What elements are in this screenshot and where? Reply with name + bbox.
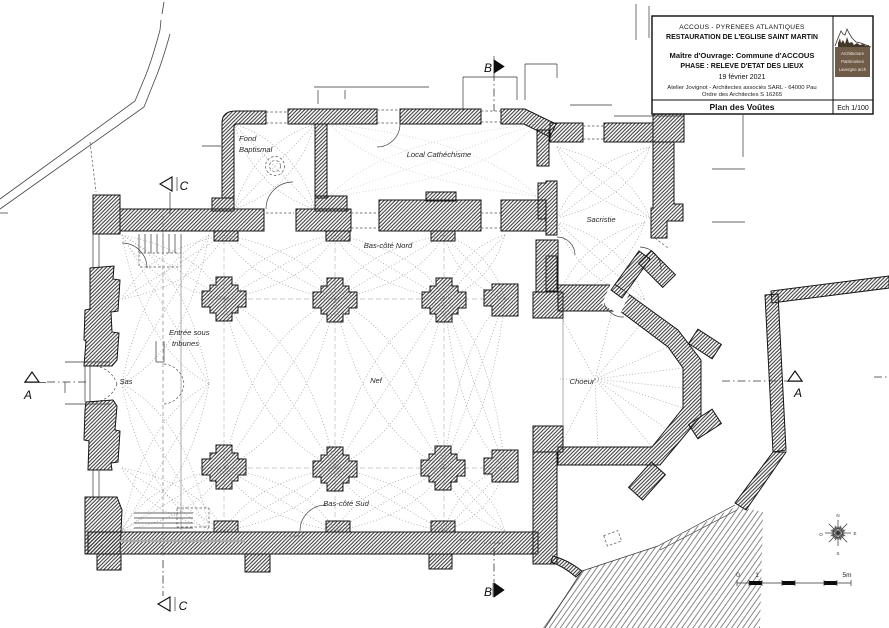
svg-text:Local Cathéchisme: Local Cathéchisme	[407, 150, 472, 159]
svg-text:A: A	[23, 388, 32, 402]
svg-text:B: B	[484, 61, 492, 75]
svg-text:Maître d'Ouvrage: Commune d'AC: Maître d'Ouvrage: Commune d'ACCOUS	[670, 51, 815, 60]
svg-text:Sacristie: Sacristie	[586, 215, 615, 224]
svg-text:C: C	[180, 179, 189, 193]
svg-text:RESTAURATION DE L'EGLISE SAINT: RESTAURATION DE L'EGLISE SAINT MARTIN	[666, 34, 818, 41]
svg-text:B: B	[484, 585, 492, 599]
svg-text:Bas-côté Nord: Bas-côté Nord	[364, 241, 413, 250]
svg-text:Plan des Voûtes: Plan des Voûtes	[709, 102, 774, 112]
svg-text:S: S	[836, 551, 839, 556]
svg-text:Atelier Jovignot - Architectes: Atelier Jovignot - Architectes associés …	[667, 85, 816, 91]
svg-text:Ech 1/100: Ech 1/100	[837, 105, 869, 112]
svg-text:Fond: Fond	[239, 134, 257, 143]
svg-text:0: 0	[736, 572, 740, 579]
svg-text:N: N	[836, 513, 839, 518]
svg-text:E: E	[853, 531, 856, 536]
svg-text:Architecture: Architecture	[841, 51, 865, 56]
svg-text:C: C	[179, 599, 188, 613]
svg-text:Ordre des Architectes S 16265: Ordre des Architectes S 16265	[702, 92, 783, 98]
svg-text:19 février 2021: 19 février 2021	[719, 74, 766, 81]
svg-text:ACCOUS - PYRENEES ATLANTIQUES: ACCOUS - PYRENEES ATLANTIQUES	[679, 24, 805, 31]
svg-text:Bas-côté Sud: Bas-côté Sud	[323, 499, 369, 508]
svg-text:tribunes: tribunes	[172, 339, 199, 348]
svg-text:PHASE : RELEVE D'ETAT DES LIEU: PHASE : RELEVE D'ETAT DES LIEUX	[680, 63, 803, 70]
svg-text:Nef: Nef	[370, 376, 383, 385]
svg-text:O: O	[819, 532, 823, 537]
svg-text:Sas: Sas	[119, 377, 132, 386]
svg-text:Entrée sous: Entrée sous	[169, 328, 210, 337]
svg-text:1: 1	[755, 572, 759, 579]
svg-text:A: A	[793, 386, 802, 400]
svg-text:Patrimoines: Patrimoines	[841, 59, 864, 64]
svg-text:Choeur: Choeur	[570, 377, 595, 386]
svg-text:Lavergne arch: Lavergne arch	[839, 67, 867, 72]
svg-text:5m: 5m	[842, 572, 851, 579]
svg-text:Baptismal: Baptismal	[239, 145, 273, 154]
